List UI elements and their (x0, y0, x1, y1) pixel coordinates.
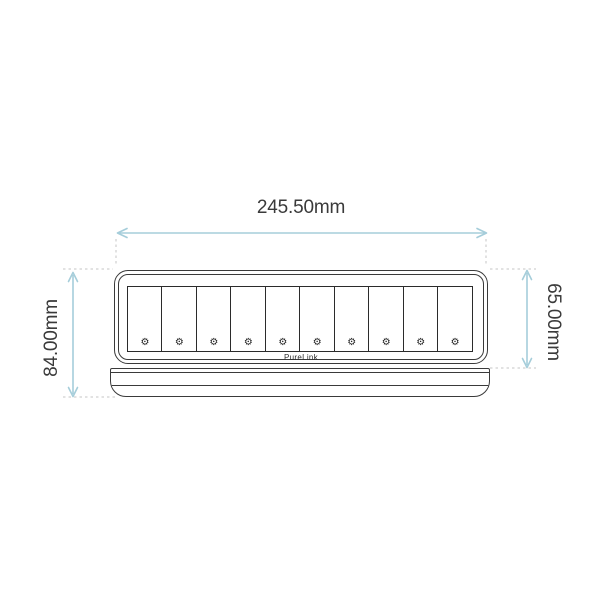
module-slot: ⚙ (437, 286, 473, 352)
overall-height-dimension-label: 84.00mm (41, 278, 63, 398)
screw-icon: ⚙ (278, 338, 287, 348)
screw-icon: ⚙ (313, 338, 322, 348)
module-slot: ⚙ (230, 286, 266, 352)
body-height-dimension-label: 65.00mm (542, 262, 564, 382)
screw-icon: ⚙ (382, 338, 391, 348)
width-dimension-label: 245.50mm (231, 197, 371, 219)
module-slot: ⚙ (196, 286, 232, 352)
overall-height-dimension-arrow (69, 273, 78, 397)
screw-icon: ⚙ (244, 338, 253, 348)
module-slot: ⚙ (265, 286, 301, 352)
base-lip-line (111, 372, 489, 373)
module-slot: ⚙ (368, 286, 404, 352)
module-slot: ⚙ (403, 286, 439, 352)
module-row: ⚙⚙⚙⚙⚙⚙⚙⚙⚙⚙ (127, 286, 473, 352)
screw-icon: ⚙ (140, 338, 149, 348)
dimension-drawing: 245.50mm 84.00mm 65.00mm ⚙⚙⚙⚙⚙⚙⚙⚙⚙⚙ Pure… (0, 0, 600, 600)
module-slot: ⚙ (299, 286, 335, 352)
base-mid-line (111, 385, 489, 386)
device-base (110, 368, 490, 397)
screw-icon: ⚙ (347, 338, 356, 348)
screw-icon: ⚙ (209, 338, 218, 348)
module-slot: ⚙ (334, 286, 370, 352)
body-height-dimension-arrow (523, 271, 532, 368)
screw-icon: ⚙ (416, 338, 425, 348)
module-slot: ⚙ (127, 286, 163, 352)
screw-icon: ⚙ (175, 338, 184, 348)
brand-label: PureLink (118, 353, 484, 362)
screw-icon: ⚙ (451, 338, 460, 348)
width-dimension-arrow (118, 229, 487, 238)
module-slot: ⚙ (161, 286, 197, 352)
